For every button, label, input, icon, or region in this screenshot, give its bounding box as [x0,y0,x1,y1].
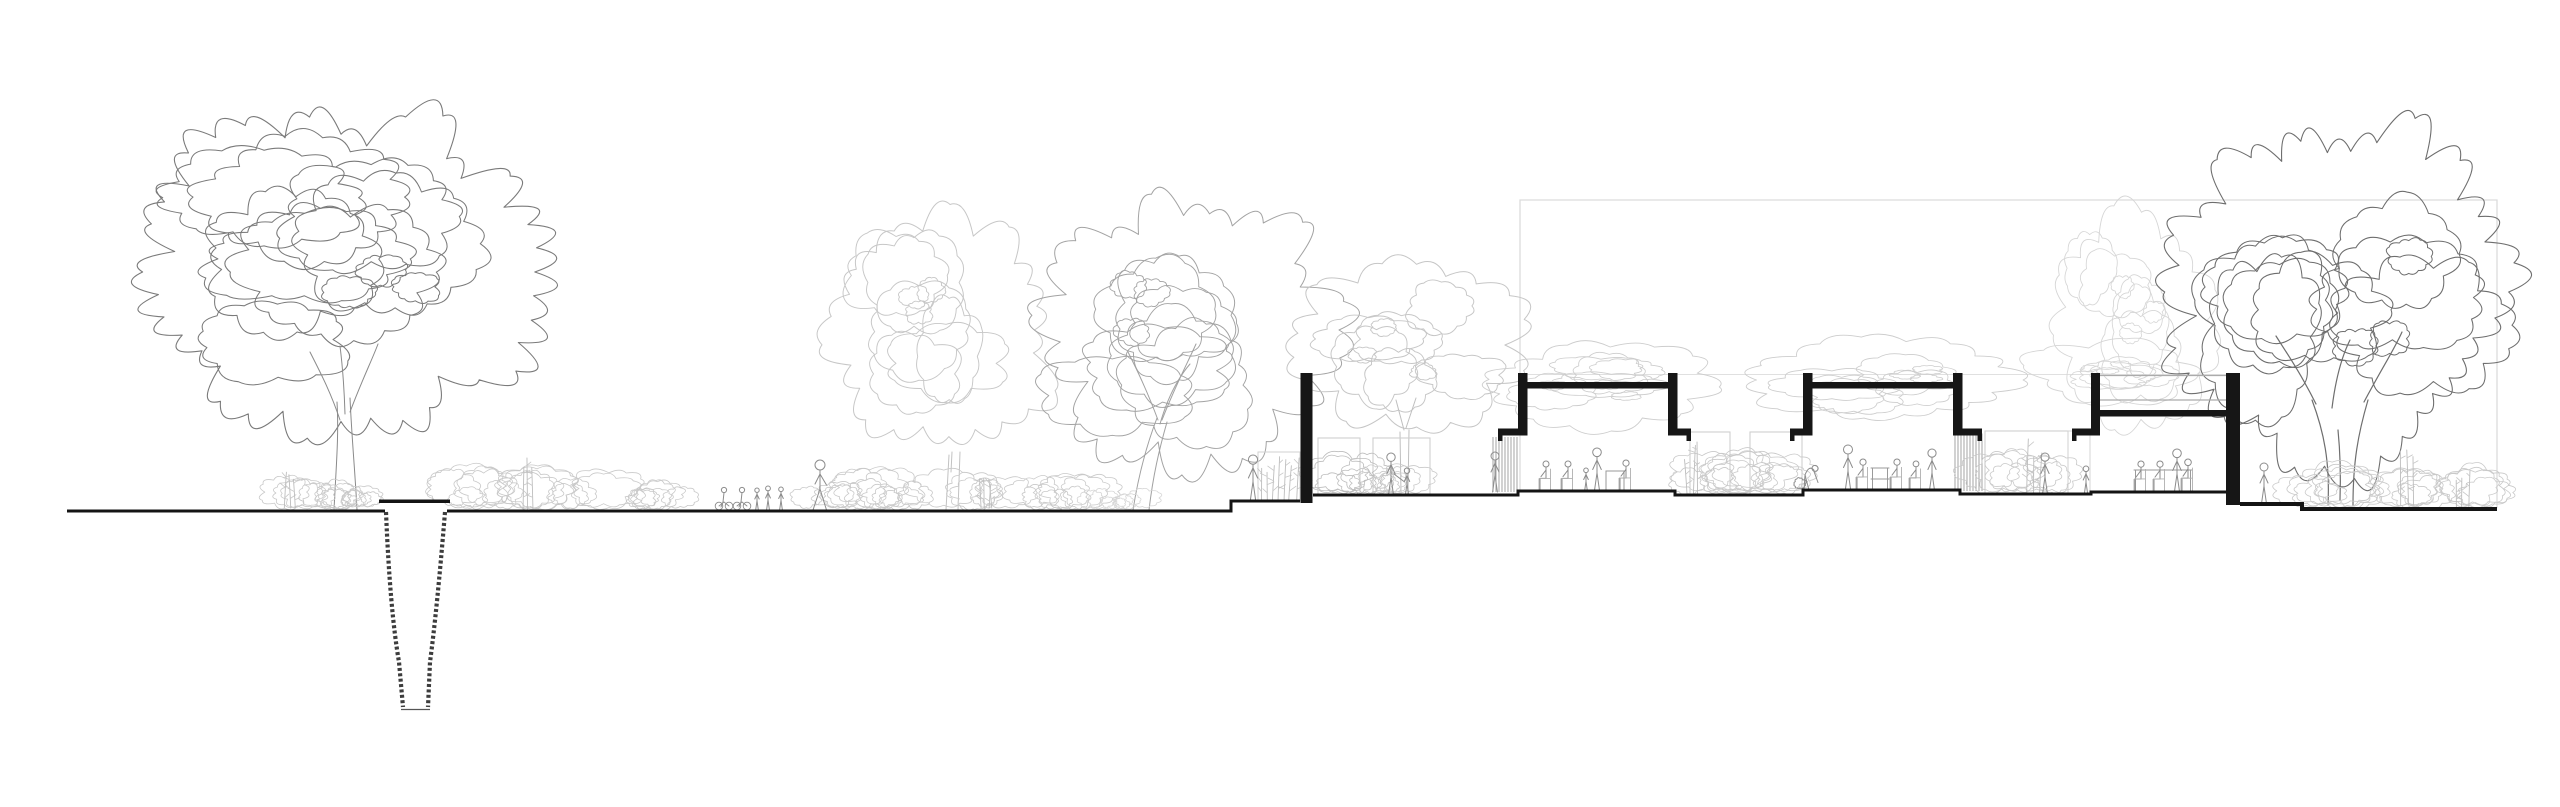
pav2-standing-1 [1844,445,1853,490]
well-shaft-left [386,512,403,707]
pav3-left-tab [2072,429,2077,442]
ground-middle [447,501,1300,511]
well-shaft-right [428,512,445,707]
pav1-standing [1593,448,1602,491]
pav2-right-post [1953,373,1963,436]
canopy-over-pavilion-2 [1745,334,2028,420]
bench-pavilion-1 [1606,471,1624,491]
child-group-1 [755,488,759,510]
table-pavilion-3 [2134,470,2192,492]
pav1-seated-2 [1561,461,1573,491]
pav3-seated-2 [2153,461,2165,492]
child-group-2 [766,486,771,510]
tree-left-large [131,100,557,510]
child-courtyard-2 [2083,466,2089,494]
pav1-seated-1 [1539,461,1551,491]
pav2-gardener [1804,465,1818,490]
louver-screen-2 [1955,434,1982,492]
section-drawing-svg [0,0,2560,807]
garden-wall [1301,373,1313,503]
pav2-right-tab [1978,429,1983,442]
shrubs-meadow-1 [426,463,646,510]
pav1-left-tab [1498,429,1503,442]
pav2-seated-3 [1909,461,1921,490]
child-group-3 [779,487,784,510]
shelf-pavilion-2 [1871,468,1889,490]
pav1-right-tab [1687,429,1692,442]
child-on-bike-2 [733,487,751,509]
shrubs-right-garden [2273,460,2516,509]
pav2-standing-2 [1928,449,1936,490]
pav3-roof-slab [2100,410,2233,417]
tree-right-large [2156,110,2532,505]
pav3-left-post [2091,373,2100,436]
pav2-roof-slab [1812,382,1954,389]
child-on-bike-1 [715,487,733,509]
pav1-seated-3 [1619,460,1631,491]
shrubs-meadow-4 [945,472,1122,511]
person-right-garden [2260,463,2268,503]
planting-box-2 [1359,464,1437,495]
tall-grasses-wall [1258,457,1305,501]
pav1-child [1584,468,1589,491]
courtyard1-planting-left [1669,448,1774,495]
palm-courtyard-2 [2022,439,2042,493]
shrubs-meadow-3 [790,467,982,510]
well-cap [379,500,450,504]
pav2-left-tab [1790,429,1795,442]
pav3-right-wall [2226,373,2240,505]
pav1-roof-slab [1526,382,1670,389]
person-at-louvers [1491,452,1499,492]
architectural-section-canvas [0,0,2560,807]
pav2-left-post [1803,373,1813,436]
tree-grove-left [817,201,1058,510]
shrubs-meadow-2 [626,480,698,510]
pav2-seated-2 [1890,459,1902,490]
canopy-over-pavilion-3 [2020,338,2201,406]
pav2-seated-1 [1856,459,1868,490]
glass-box-1 [1318,438,1360,495]
